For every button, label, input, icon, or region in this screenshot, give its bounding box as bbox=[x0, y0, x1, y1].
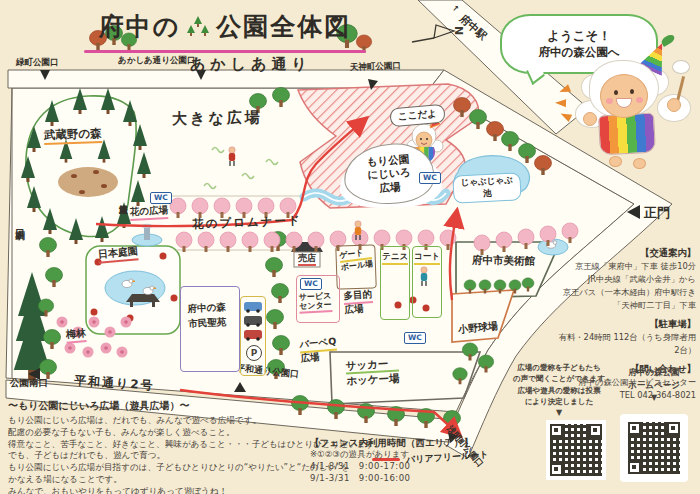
fence-schedule-line: 4/1-8/31 9:00-17:00 bbox=[310, 461, 473, 473]
homepage-label: 府中の森公園 ホームページ ▼ bbox=[612, 366, 696, 404]
wc-badge: WC bbox=[150, 192, 172, 204]
nijiiro-description-line: みんなで、おもいやりをもってゆずりあって遊ぼうね！ bbox=[8, 486, 383, 494]
qr-pattern bbox=[628, 422, 680, 474]
title-suffix: 公園全体図 bbox=[216, 10, 351, 43]
access-line: 京王線「東府中」下車 徒歩10分 bbox=[556, 260, 696, 273]
area-musashino-forest: 武蔵野の森 bbox=[44, 127, 102, 145]
facility-seien: 府中の森 市民聖苑 bbox=[187, 299, 227, 331]
area-flower-plaza: 花の広場 bbox=[130, 205, 169, 221]
welcome-line1: ようこそ！ bbox=[547, 28, 611, 45]
service-line2: センター bbox=[299, 300, 332, 314]
area-big-plaza: 大きな広場 bbox=[172, 109, 263, 128]
facility-court: コート bbox=[414, 252, 440, 265]
nickname-note-line: 広場の愛称を子どもたち bbox=[506, 362, 612, 373]
facility-tennis: テニス bbox=[382, 252, 408, 265]
seien-line2: 市民聖苑 bbox=[188, 314, 227, 331]
qr-finder bbox=[667, 422, 680, 435]
mascot-blush bbox=[606, 98, 613, 104]
mascot-face bbox=[600, 74, 648, 118]
access-heading: 【交通案内】 bbox=[556, 246, 696, 260]
title-underline bbox=[84, 50, 366, 53]
qr-finder bbox=[550, 463, 563, 476]
down-arrow-icon: ▼ bbox=[612, 392, 696, 404]
area-multipurpose: 多目的 広場 bbox=[343, 289, 373, 316]
sparkle-icon bbox=[555, 99, 566, 107]
facility-service-center: サービス センター bbox=[298, 291, 332, 314]
mascot-arm bbox=[583, 112, 597, 126]
mascot-foot bbox=[609, 156, 622, 167]
parking-line: 有料・24時間 112台（うち身障者用2台） bbox=[556, 331, 696, 357]
park-mascot bbox=[573, 52, 693, 194]
entrance-south: 公園南口 bbox=[10, 378, 48, 389]
facility-gateball: ゲート ボール場 bbox=[339, 247, 374, 272]
entrance-tenjincho: 天神町公園口 bbox=[350, 61, 401, 73]
parking-heading: 【駐車場】 bbox=[556, 317, 696, 331]
nickname-note-line: により決定しました bbox=[506, 396, 612, 407]
qr-code-nicknames bbox=[546, 420, 606, 480]
access-line: JR中央線「武蔵小金井」から bbox=[556, 273, 696, 286]
title-prefix: 府中の bbox=[99, 10, 181, 43]
park-map-page: 府中の 公園全体図 ようこそ！ 府中の森公園へ bbox=[0, 0, 700, 494]
area-bbq: バーベQ 広場 bbox=[299, 336, 338, 364]
entrance-main-gate: 正門 bbox=[644, 206, 670, 221]
homepage-label-line: 府中の森公園 bbox=[612, 366, 696, 379]
qr-pattern bbox=[550, 424, 602, 476]
qr-finder bbox=[589, 424, 602, 437]
access-line: 「天神町二丁目」下車 bbox=[556, 299, 696, 312]
qr-code-homepage bbox=[620, 414, 688, 482]
area-plum-grove: 梅林 bbox=[65, 327, 86, 343]
multipurpose-line2: 広場 bbox=[344, 303, 373, 316]
fence-heading: 【フェンス内利用時間（西エリア）】 bbox=[310, 436, 473, 449]
page-title: 府中の 公園全体図 bbox=[84, 10, 366, 43]
entrance-akashia: あかしあ通り公園口 bbox=[118, 56, 196, 66]
mori-trees-icon bbox=[185, 16, 211, 38]
compass-north-label: N bbox=[452, 26, 465, 35]
mascot-wand-cloud bbox=[672, 60, 690, 74]
fence-hours: 【フェンス内利用時間（西エリア）】 ※①②③の遊具があります 4/1-8/31 … bbox=[310, 436, 473, 485]
wc-badge: WC bbox=[404, 332, 426, 344]
qr-finder bbox=[628, 422, 641, 435]
parking-badge: P bbox=[246, 345, 262, 361]
nijiiro-line3: 広場 bbox=[379, 180, 401, 195]
fence-note: ※①②③の遊具があります bbox=[310, 449, 473, 461]
fence-schedule-line: 9/1-3/31 9:00-16:00 bbox=[310, 473, 473, 485]
down-arrow-icon: ▼ bbox=[506, 407, 612, 419]
wc-badge: WC bbox=[419, 172, 441, 184]
facility-museum: 府中市美術館 bbox=[472, 253, 535, 266]
entrance-midoricho: 緑町公園口 bbox=[16, 58, 59, 68]
access-line: 京王バス（一本木経由）府中駅行き bbox=[556, 286, 696, 299]
parking-strip-outline bbox=[240, 296, 266, 376]
qr-finder bbox=[628, 461, 641, 474]
jabujabu-pond-label: じゃぶじゃぶ 池 bbox=[452, 172, 521, 204]
nickname-note-line: 広場や遊具の愛称は投票 bbox=[506, 385, 612, 396]
mascot-blush bbox=[636, 97, 643, 103]
nijiiro-description-heading: 〜もり公園にじいろ広場（遊具広場）〜 bbox=[8, 399, 383, 413]
mascot-rainbow-cape bbox=[598, 113, 656, 156]
nickname-note: 広場の愛称を子どもたち の声で聞くことができます 広場や遊具の愛称は投票 により… bbox=[506, 362, 612, 419]
qr-finder bbox=[550, 424, 563, 437]
mascot-arm bbox=[667, 98, 681, 112]
facility-soccer-hockey: サッカー ホッケー場 bbox=[345, 357, 400, 387]
nickname-note-line: の声で聞くことができます bbox=[506, 373, 612, 384]
nijiiro-description-line: もり公園にじいろ広場は、だれでも、みんなで遊べる広場です。 bbox=[8, 415, 383, 427]
mascot-eye bbox=[614, 90, 618, 95]
wc-badge: WC bbox=[300, 278, 322, 290]
street-akashia-dori: あかしあ通り bbox=[190, 56, 312, 73]
facility-shop: 売店 bbox=[298, 253, 316, 266]
homepage-label-line: ホームページ bbox=[612, 379, 696, 392]
mascot-eye bbox=[630, 89, 634, 94]
mascot-foot bbox=[633, 158, 646, 169]
